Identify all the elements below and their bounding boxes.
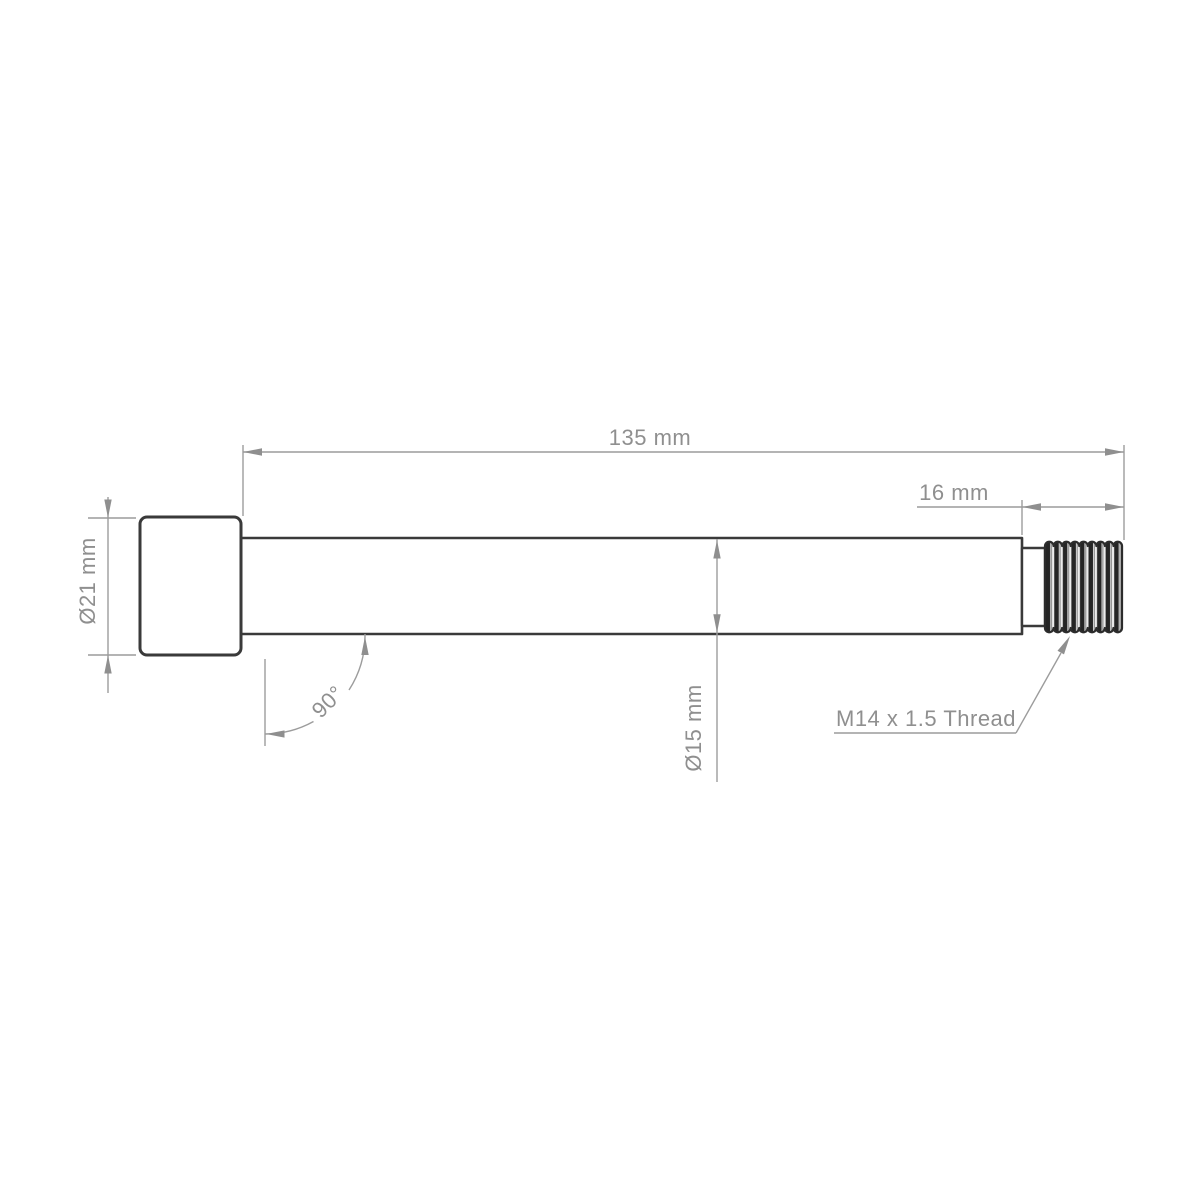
axle-shaft <box>241 538 1022 634</box>
angle-arc <box>265 722 314 735</box>
arrow-right-icon <box>1105 448 1124 455</box>
axle-part <box>140 517 1122 655</box>
head-diameter-label: Ø21 mm <box>75 537 100 624</box>
dim-thread-length: 16 mm <box>917 480 1124 535</box>
technical-drawing: 135 mm 16 mm Ø21 mm Ø15 mm <box>0 0 1200 1200</box>
shaft-diameter-label: Ø15 mm <box>681 684 706 771</box>
dim-head-diameter: Ø21 mm <box>75 497 136 693</box>
axle-head <box>140 517 241 655</box>
dim-head-angle: 90° <box>265 634 369 746</box>
thread-spec-label: M14 x 1.5 Thread <box>836 706 1016 731</box>
angle-arc <box>349 634 365 690</box>
arrow-left-icon <box>1022 503 1041 510</box>
label-thread-spec: M14 x 1.5 Thread <box>834 636 1070 733</box>
arrow-up-icon <box>361 637 368 656</box>
arrow-right-icon <box>1105 503 1124 510</box>
overall-length-label: 135 mm <box>609 425 691 450</box>
thread-length-label: 16 mm <box>919 480 989 505</box>
arrow-left-icon <box>243 448 262 455</box>
thread-section <box>1045 542 1122 633</box>
leader-line <box>1016 653 1061 733</box>
dim-overall-length: 135 mm <box>243 425 1124 540</box>
head-angle-label: 90° <box>307 681 349 723</box>
drawing-canvas: 135 mm 16 mm Ø21 mm Ø15 mm <box>0 0 1200 1200</box>
arrow-down-icon <box>104 500 111 519</box>
arrow-up-right-icon <box>1058 636 1071 654</box>
arrow-up-icon <box>104 655 111 674</box>
thread-relief-neck <box>1022 548 1045 626</box>
arrow-left-icon <box>266 730 285 737</box>
